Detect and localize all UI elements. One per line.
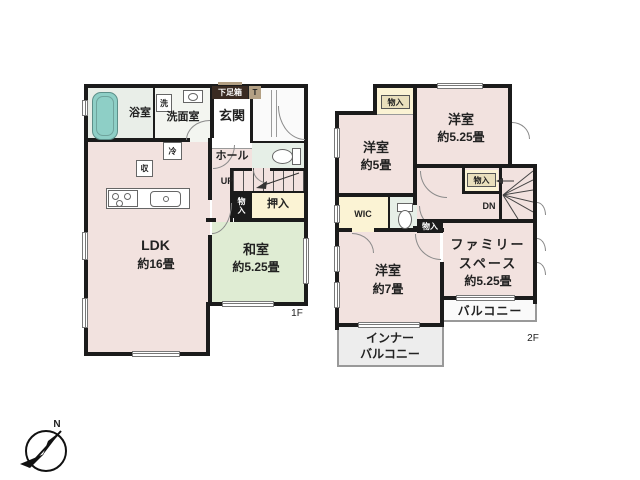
monoiri-stairs-label: 物入: [467, 173, 496, 187]
window: [82, 232, 88, 260]
family-space-line2: スペース: [455, 255, 521, 272]
kitchen-sink: [150, 191, 181, 207]
wall: [335, 111, 377, 115]
basin-bowl: [188, 93, 198, 101]
inner-balcony-line2: バルコニー: [355, 347, 425, 361]
wall: [440, 262, 444, 327]
inner-balcony-line1: インナー: [362, 331, 418, 345]
family-space-line1: ファミリー: [448, 236, 528, 253]
burner: [124, 193, 131, 200]
wall: [84, 84, 308, 88]
wall: [413, 84, 417, 205]
porch-strip: [218, 82, 242, 85]
shoe-cabinet-line: [271, 90, 272, 137]
casement-window: [537, 238, 546, 251]
toilet-bowl-1f: [272, 149, 293, 164]
window: [456, 295, 515, 301]
room-yoshitsu-525: [415, 88, 508, 168]
window: [222, 301, 274, 307]
shoebox-t-label: T: [248, 86, 261, 99]
wall: [462, 191, 501, 194]
wall: [443, 219, 537, 223]
toilet-tank-1f: [292, 148, 301, 165]
wall: [233, 191, 304, 193]
wall: [208, 235, 212, 302]
room-yoshitsu-5: [337, 115, 415, 197]
wall: [388, 197, 390, 232]
oshiire-label: 押入: [258, 198, 298, 212]
washitsu-label: 和室: [234, 241, 278, 258]
floor2-label: 2F: [522, 333, 544, 345]
wic-label: WIC: [345, 208, 381, 220]
window: [358, 322, 420, 328]
stairs-arrow-2f: [494, 175, 516, 187]
shoebox-label: 下足箱: [212, 86, 248, 99]
washitsu-size: 約5.25畳: [220, 260, 292, 274]
wall: [335, 193, 417, 197]
wall: [444, 296, 456, 300]
window: [303, 238, 309, 284]
wall: [533, 164, 537, 304]
window: [334, 282, 340, 308]
window: [437, 83, 483, 89]
storage-box: 収: [136, 160, 153, 177]
burner: [116, 200, 123, 207]
ldk-label: LDK: [128, 237, 183, 254]
wall: [335, 323, 358, 327]
yoshitsu-7-label: 洋室: [364, 262, 412, 279]
wall: [515, 296, 537, 300]
yoshitsu-7-size: 約7畳: [362, 282, 414, 296]
casement-window: [537, 262, 546, 275]
yoshitsu-5-label: 洋室: [352, 139, 400, 156]
folding-door-line: [377, 114, 413, 115]
monoiri-hall-label: 物入: [417, 219, 443, 233]
dn-label: DN: [479, 200, 499, 212]
closet-monoiri-1f: 物入: [233, 193, 250, 218]
up-label: UP: [217, 175, 237, 187]
floorplan-canvas: 物入 洗 冷 収 下足箱 T 浴室: [0, 0, 640, 480]
window: [334, 128, 340, 158]
yoshitsu-525-label: 洋室: [432, 111, 490, 128]
family-space-size: 約5.25畳: [455, 274, 521, 288]
wall: [234, 218, 308, 222]
yoshitsu-5-size: 約5畳: [350, 158, 402, 172]
stairs-arrow-1f: [235, 169, 303, 191]
wall: [335, 228, 352, 232]
window: [82, 298, 88, 328]
ldk-size: 約16畳: [124, 257, 188, 272]
shoe-cabinet-line: [276, 90, 277, 137]
burner: [112, 193, 119, 200]
casement-window: [537, 202, 546, 215]
drain: [163, 196, 169, 202]
door-arc-yoshitsu-525: [512, 122, 530, 139]
genkan-label: 玄関: [213, 107, 251, 125]
window: [334, 205, 340, 223]
washbasin: [183, 90, 203, 103]
washroom-label: 洗面室: [156, 111, 210, 125]
wall: [250, 193, 252, 218]
toilet-bowl-2f: [398, 210, 412, 229]
fridge-box: 冷: [163, 142, 182, 160]
floor1-label: 1F: [286, 308, 308, 320]
window: [334, 246, 340, 272]
yoshitsu-525-size: 約5.25畳: [425, 130, 497, 144]
wall: [420, 323, 444, 327]
monoiri-top-label: 物入: [381, 95, 410, 109]
compass-n-label: N: [50, 418, 64, 432]
compass-north-icon: [16, 418, 80, 478]
window: [82, 100, 88, 116]
hall-label: ホール: [210, 150, 254, 164]
balcony-label: バルコニー: [450, 304, 530, 318]
window: [132, 351, 180, 357]
wall: [206, 302, 210, 356]
wall: [250, 141, 307, 143]
